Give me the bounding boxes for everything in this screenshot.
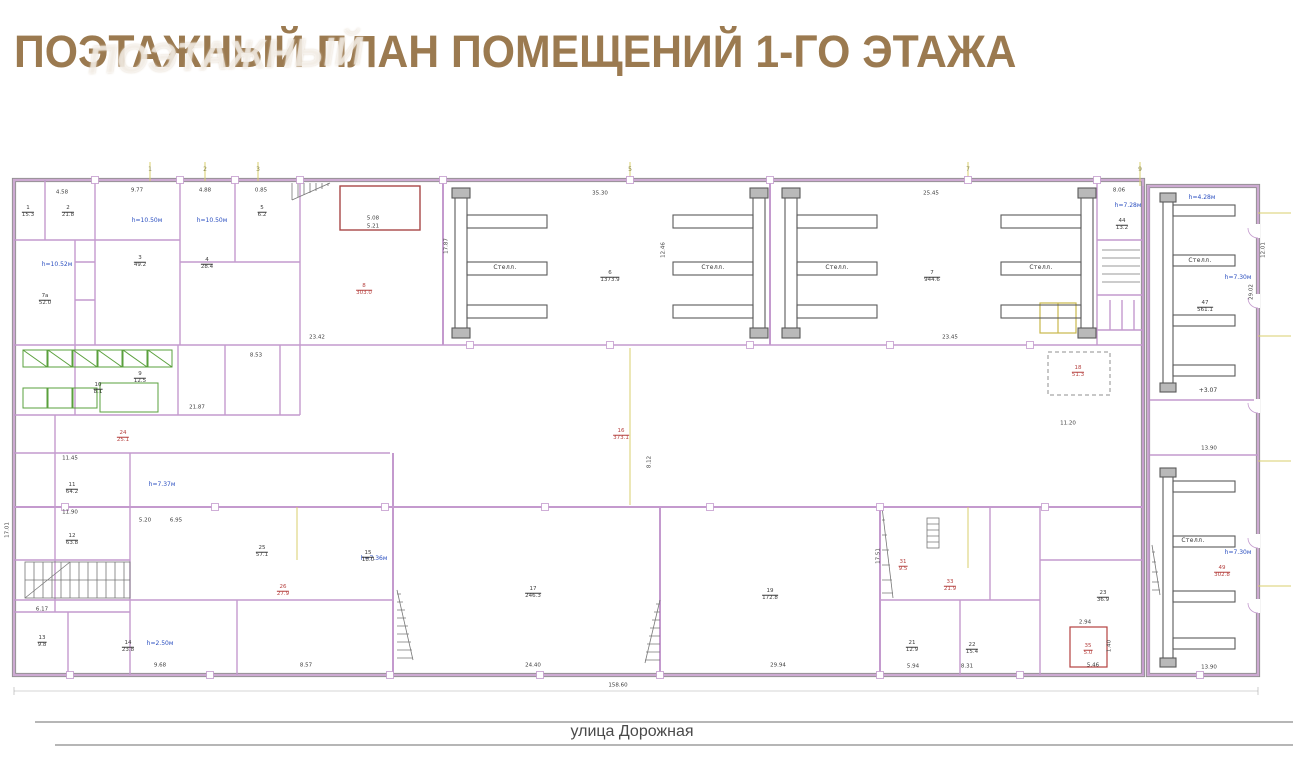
street-name: улица Дорожная bbox=[570, 723, 693, 741]
outer-wall bbox=[14, 180, 1258, 675]
small-red-room bbox=[1070, 627, 1107, 667]
floor-plan-svg bbox=[0, 0, 1293, 767]
floor-plan-page: ПОЭТАЖНЫЙ ПЛАН ПОМЕЩЕНИЙ 1-ГО ЭТАЖА ПОЭТ… bbox=[0, 0, 1293, 767]
overall-dimension-line bbox=[14, 687, 1258, 695]
outer-wall-edge bbox=[14, 180, 1258, 675]
interior-walls bbox=[14, 180, 1258, 675]
dashed-room bbox=[1048, 352, 1110, 395]
sanitary-fixtures bbox=[23, 350, 172, 412]
axis-lines bbox=[150, 162, 1291, 586]
floor-plan-drawing: 4.589.774.880.8535.3025.458.065.085.2117… bbox=[0, 0, 1293, 767]
storage-racks bbox=[452, 188, 1235, 667]
red-outlined-room bbox=[340, 186, 420, 230]
wall-nodes bbox=[62, 177, 1204, 679]
